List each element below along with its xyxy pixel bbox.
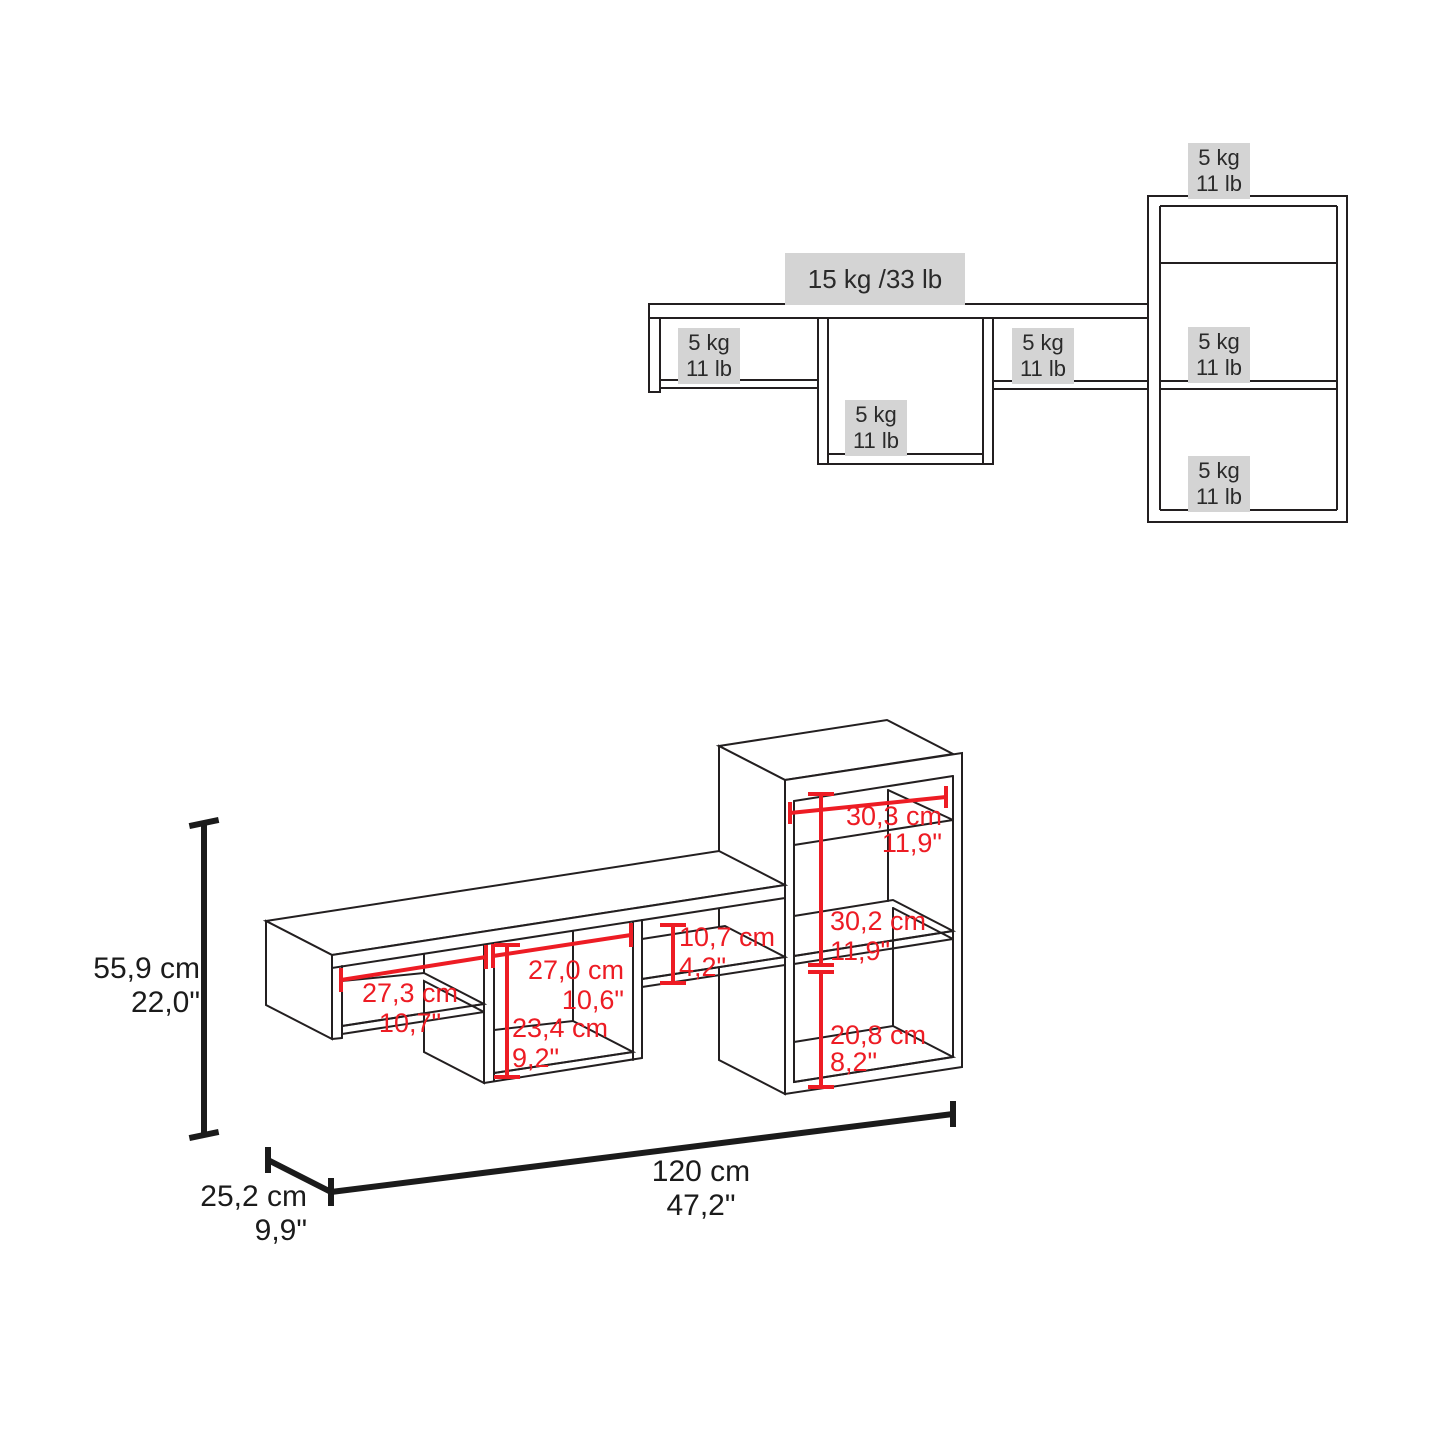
dimension-label-width: 120 cm 47,2" xyxy=(631,1155,771,1223)
capacity-lb: 11 lb xyxy=(845,428,907,454)
dimension-width-in: 47,2" xyxy=(631,1189,771,1223)
left-opening-in: 10,7" xyxy=(335,1008,485,1038)
capacity-label-top-shelf: 15 kg /33 lb xyxy=(785,253,965,305)
dimension-label-right-height: 10,7 cm 4,2" xyxy=(679,922,829,982)
capacity-lb: 11 lb xyxy=(1188,171,1250,197)
dimension-depth-cm: 25,2 cm xyxy=(167,1180,307,1214)
center-height-cm: 23,4 cm xyxy=(512,1013,662,1043)
capacity-label-tower-bottom: 5 kg 11 lb xyxy=(1188,456,1250,512)
capacity-lb: 11 lb xyxy=(1012,356,1074,382)
dimension-depth-in: 9,9" xyxy=(167,1214,307,1248)
dimension-label-center-height: 23,4 cm 9,2" xyxy=(512,1013,662,1073)
capacity-lb: 11 lb xyxy=(1188,355,1250,381)
left-opening-cm: 27,3 cm xyxy=(335,978,485,1008)
capacity-lb: 11 lb xyxy=(1188,484,1250,510)
capacity-label-tower-middle: 5 kg 11 lb xyxy=(1188,327,1250,383)
right-height-in: 4,2" xyxy=(679,952,829,982)
tower-width-cm: 30,3 cm xyxy=(792,803,942,830)
capacity-kg: 5 kg xyxy=(845,402,907,428)
center-opening-in: 10,6" xyxy=(474,985,624,1015)
capacity-kg: 5 kg xyxy=(678,330,740,356)
tower-upper-in: 11,9" xyxy=(830,936,980,966)
dimension-label-height: 55,9 cm 22,0" xyxy=(40,952,200,1020)
right-height-cm: 10,7 cm xyxy=(679,922,829,952)
tower-width-in: 11,9" xyxy=(792,830,942,857)
capacity-label-drop-box: 5 kg 11 lb xyxy=(845,400,907,456)
dimension-diagram-page: 15 kg /33 lb 5 kg 11 lb 5 kg 11 lb 5 kg … xyxy=(0,0,1445,1445)
dimension-height-cm: 55,9 cm xyxy=(40,952,200,986)
tower-lower-cm: 20,8 cm xyxy=(830,1022,980,1049)
capacity-label-right-cubby: 5 kg 11 lb xyxy=(1012,328,1074,384)
dimension-height-in: 22,0" xyxy=(40,986,200,1020)
capacity-kg: 5 kg xyxy=(1012,330,1074,356)
center-height-in: 9,2" xyxy=(512,1043,662,1073)
dimension-label-tower-width: 30,3 cm 11,9" xyxy=(792,803,942,857)
capacity-kg: 5 kg xyxy=(1188,145,1250,171)
capacity-label-left-cubby: 5 kg 11 lb xyxy=(678,328,740,384)
dimension-label-left-opening: 27,3 cm 10,7" xyxy=(335,978,485,1038)
dimension-width-cm: 120 cm xyxy=(631,1155,771,1189)
tower-lower-in: 8,2" xyxy=(830,1049,980,1076)
capacity-kg: 5 kg xyxy=(1188,329,1250,355)
tower-upper-cm: 30,2 cm xyxy=(830,906,980,936)
center-opening-cm: 27,0 cm xyxy=(474,955,624,985)
capacity-label-tower-top: 5 kg 11 lb xyxy=(1188,143,1250,199)
capacity-lb: 11 lb xyxy=(678,356,740,382)
dimension-label-center-opening: 27,0 cm 10,6" xyxy=(474,955,624,1015)
dimension-label-depth: 25,2 cm 9,9" xyxy=(167,1180,307,1248)
dimension-label-tower-lower: 20,8 cm 8,2" xyxy=(830,1022,980,1076)
capacity-kg: 5 kg xyxy=(1188,458,1250,484)
dimension-label-tower-upper: 30,2 cm 11,9" xyxy=(830,906,980,966)
